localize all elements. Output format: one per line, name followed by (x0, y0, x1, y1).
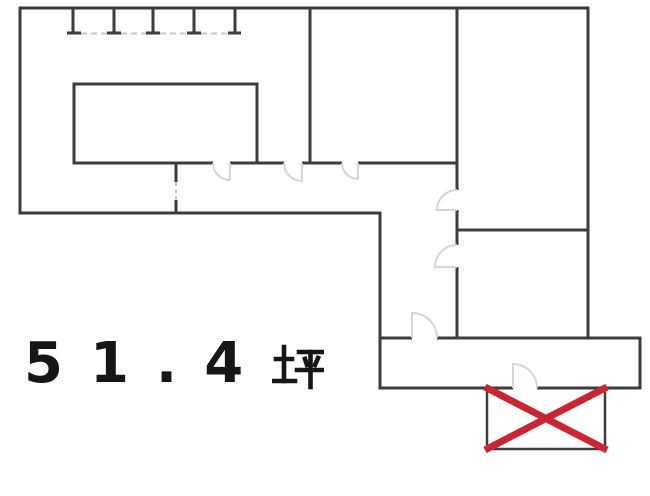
x-mark-icon (485, 387, 607, 450)
stall-divider-4 (187, 8, 201, 33)
tsubo-kanji-glyph (272, 339, 324, 391)
entrance-inner-door (412, 313, 437, 338)
crossed-out-box (485, 387, 607, 450)
outer-wall-upper (20, 8, 588, 338)
east-room-a-door (437, 190, 457, 210)
inner-room-walls (74, 84, 257, 165)
floor-plan-canvas: 51.4 (0, 0, 650, 496)
stall-divider-3 (146, 8, 160, 33)
stall-divider-5 (228, 8, 241, 33)
floor-area-value: 51.4 (24, 336, 270, 392)
left-hall-door (284, 163, 302, 181)
light-dashed-lines (81, 34, 228, 201)
stall-divider-2 (107, 8, 121, 33)
entrance-outer-door (513, 364, 537, 388)
inner-room-door (213, 163, 230, 180)
tsubo-stroke-flat-dot-right (315, 358, 318, 365)
toilet-stalls (67, 8, 241, 33)
stall-divider-1 (67, 8, 81, 33)
floor-area-label: 51.4 (24, 336, 324, 396)
east-room-b-door (435, 245, 457, 267)
floor-plan-drawing (0, 0, 650, 496)
tsubo-stroke-flat-dot-left (305, 359, 307, 365)
center-room-door (342, 163, 358, 179)
